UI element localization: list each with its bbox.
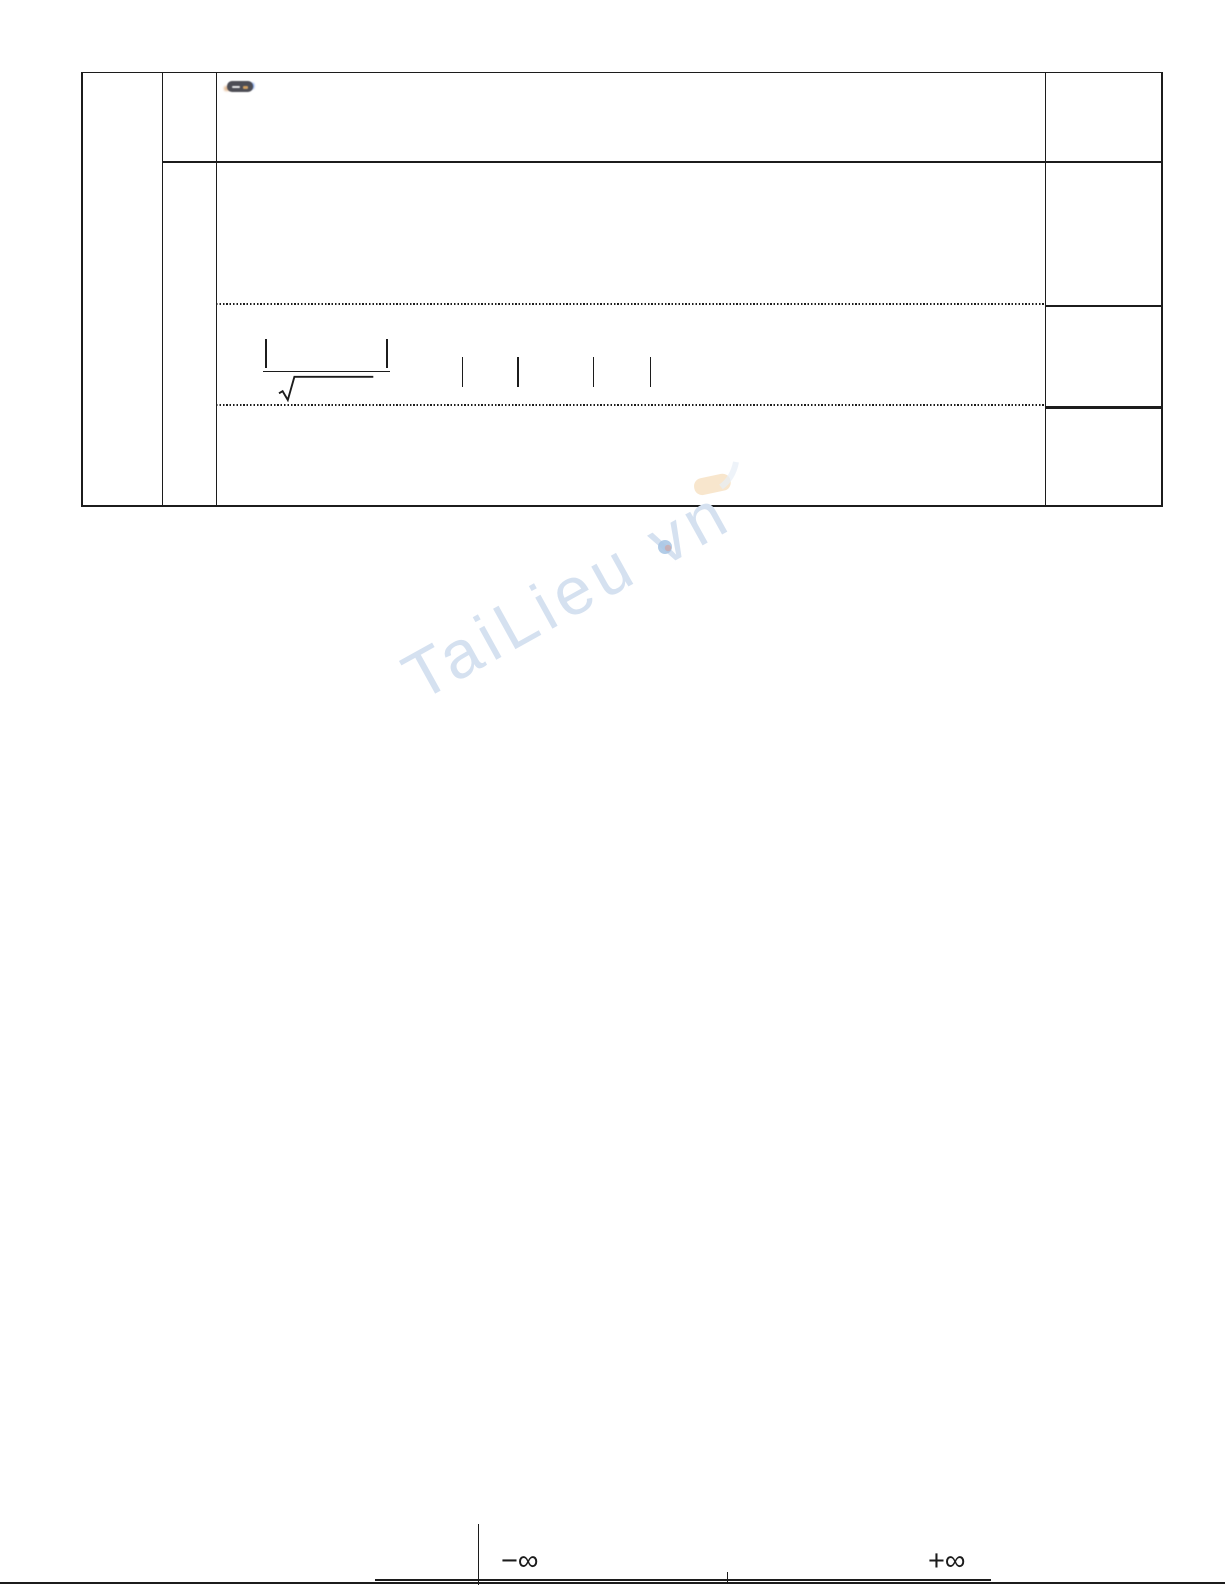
svg-text:TaiLieu.vn: TaiLieu.vn <box>391 474 744 715</box>
